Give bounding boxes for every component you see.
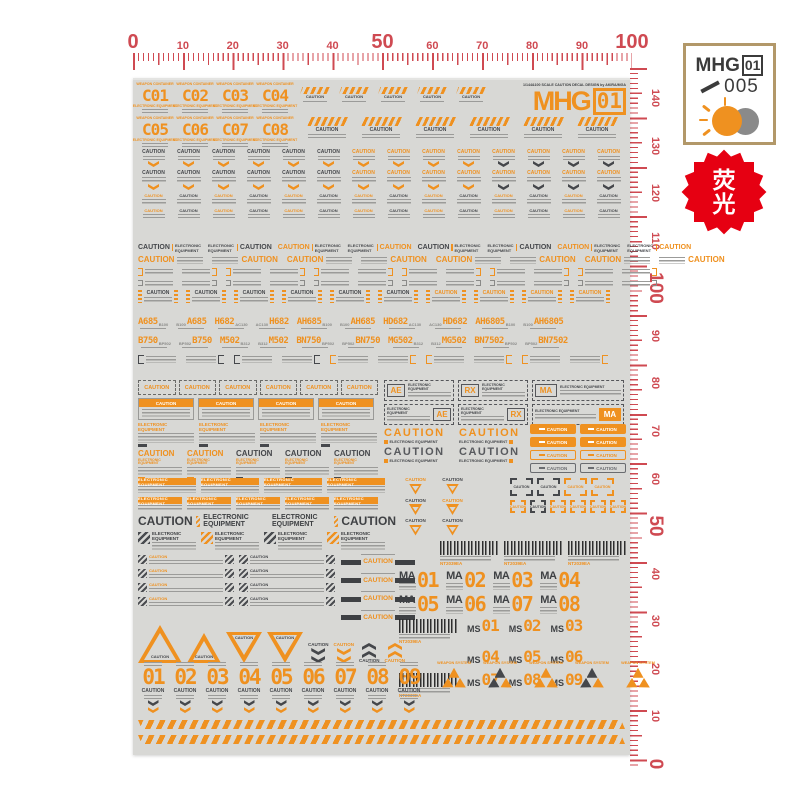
placeholder-text: [458, 156, 480, 160]
code-sub: B100: [322, 322, 332, 327]
barcode-code: NT2039EA: [504, 562, 562, 567]
placeholder-text: [341, 542, 385, 551]
badge-char: 光: [713, 192, 736, 216]
placeholder-text: [182, 143, 208, 147]
caution-label: CAUTION: [250, 583, 324, 587]
code-pair: BN7502 BP502: [525, 337, 568, 346]
caution-label: CAUTION: [405, 519, 426, 524]
placeholder-text: [186, 356, 216, 363]
code-pair-decal: MG502 B312: [388, 337, 423, 350]
placeholder-text: [182, 347, 208, 350]
zigzag-bar: [426, 290, 430, 303]
mini-caution-decal: CAUTION: [138, 209, 169, 218]
mini-caution-decal: CAUTION: [523, 194, 554, 205]
c-code-decal: WEAPON CONTAINER C08 ELECTRONIC EQUIPMEN…: [258, 117, 292, 147]
hazard-mini-decal: CAUTION: [239, 583, 335, 592]
caution-label: CAUTION: [459, 447, 529, 458]
code-pair-decal: AH685 B100: [340, 318, 375, 331]
hazard-stripes: [339, 87, 369, 94]
caution-pill: CAUTION: [530, 450, 576, 460]
electronic-equipment-label: ELECTRONIC EQUIPMENT: [315, 243, 342, 253]
electronic-equipment-label: ELECTRONIC EQUIPMENT: [201, 478, 259, 485]
triangle-down-icon: [446, 504, 459, 515]
corner-bracket-decal: CAUTION: [590, 500, 606, 513]
mini-caution-decal: CAUTION: [523, 150, 554, 167]
placeholder-text: [321, 281, 349, 286]
zigzag-bar: [558, 290, 562, 303]
bracket-icon: [402, 268, 407, 276]
caution-label: CAUTION: [579, 291, 602, 296]
placeholder-text: [142, 109, 168, 113]
triangle-icon: [546, 678, 560, 693]
chevron-caution-decal: CAUTION: [308, 643, 329, 664]
zigzag-bar: [510, 290, 514, 303]
caution-label: CAUTION: [138, 450, 182, 458]
tick-marks-major: [133, 53, 632, 70]
caution-text-decal: CAUTION: [287, 256, 352, 264]
placeholder-text: [497, 281, 525, 286]
corner-bracket-strip: [570, 355, 608, 364]
ruler-number: 60: [640, 469, 670, 489]
ee-paragraph-decal: ELECTRONIC EQUIPMENT: [260, 423, 316, 447]
ruler-number: 10: [640, 706, 670, 726]
caution-label: CAUTION: [552, 502, 564, 511]
placeholder-text: [222, 143, 248, 147]
ruler-number: 70: [462, 41, 502, 52]
weapon-system-label: WEAPON SYSTEM: [437, 662, 471, 666]
stripe-bar-band: [138, 720, 625, 744]
ms-unit-decal: MS 01: [467, 619, 499, 637]
chevron-down-icon: [323, 161, 334, 167]
placeholder-text: [143, 156, 165, 160]
placeholder-text: [422, 177, 446, 183]
bracket-strip-decal: [446, 280, 481, 286]
placeholder-text: [446, 269, 474, 275]
chevron-down-icon: [180, 707, 191, 713]
caution-label: CAUTION: [539, 256, 575, 264]
caution-label: CAUTION: [384, 428, 454, 439]
triangle-icon: [541, 668, 552, 678]
code-pair-decal: MG502 B312: [431, 337, 466, 350]
placeholder-text: [142, 177, 166, 183]
orange-circle: [712, 106, 742, 136]
caution-label: CAUTION: [547, 453, 568, 458]
code-main: B750: [138, 337, 158, 346]
ruler-number: 40: [640, 564, 670, 584]
sheet-header: WEAPON CONTAINER C01 ELECTRONIC EQUIPMEN…: [138, 83, 626, 147]
dash-mark: [588, 428, 594, 430]
code-sub: AC130: [235, 322, 247, 327]
chevron-down-icon: [603, 161, 614, 167]
ma-number: 08: [558, 595, 579, 613]
bracket-strip-decal: [622, 280, 657, 286]
code-pair: AH6805 B100: [523, 318, 563, 327]
unit-text: ELECTRONIC EQUIPMENT: [387, 408, 430, 421]
caution-ee-strip-row: CAUTION ELECTRONIC EQUIPMENT CAUTION ELE…: [138, 243, 626, 252]
placeholder-text: [510, 257, 536, 264]
zigzag-bar: [474, 290, 478, 303]
bracket-strip-decal: [226, 280, 261, 286]
code-sub: B312: [431, 341, 441, 346]
dash-mark: [539, 454, 545, 456]
caution-stripe-decal: CAUTION: [298, 87, 332, 104]
triangle-down-icon: [409, 525, 422, 536]
stencil-number: 05: [270, 667, 291, 688]
chevron-down-icon: [323, 184, 334, 190]
electronic-equipment-label: ELECTRONIC EQUIPMENT: [133, 105, 178, 109]
placeholder-text: [138, 486, 196, 493]
barcode-icon: [568, 541, 626, 555]
mini-caution-decal: CAUTION: [173, 171, 204, 190]
placeholder-text: [540, 607, 557, 614]
tiny-strip-row: [138, 268, 626, 276]
caution-label: CAUTION: [459, 428, 529, 439]
code-main: BN7502: [474, 337, 504, 346]
sun-ray: [702, 128, 711, 136]
ma-label: MA: [399, 571, 416, 582]
placeholder-text: [247, 177, 271, 183]
caution-label: CAUTION: [284, 194, 302, 198]
divider-bar: [312, 244, 313, 251]
placeholder-text: [598, 156, 620, 160]
zigzag-bar: [318, 290, 322, 303]
hazard-text: CAUTION: [250, 583, 324, 592]
weapon-system-label: WEAPON SYSTEM: [575, 662, 609, 666]
caution-label: CAUTION: [339, 291, 362, 296]
placeholder-text: [387, 177, 411, 183]
bracket-strip-decal: [490, 268, 525, 276]
caution-text-block: CAUTION: [336, 291, 364, 303]
code-pair-decal: A685 B100: [176, 318, 206, 331]
placeholder-text: [288, 297, 316, 303]
c-code: C01: [142, 88, 168, 104]
chevron-caution-decal: CAUTION: [359, 643, 380, 664]
hazard-stripe-bar: [138, 720, 625, 729]
unit-code-box: AE ELECTRONIC EQUIPMENT: [384, 404, 454, 425]
placeholder-text: [568, 556, 619, 561]
chevron-down-icon: [372, 700, 383, 706]
mini-caution-decal: CAUTION: [383, 150, 414, 167]
zigzag-bar: [174, 290, 178, 303]
corner-bracket-decal: CAUTION: [610, 500, 626, 513]
chevron-down-icon: [253, 184, 264, 190]
ms-label: MS: [509, 624, 523, 634]
placeholder-text: [318, 214, 340, 218]
hazard-mini-decal: CAUTION: [138, 583, 234, 592]
caution-label: CAUTION: [212, 171, 235, 176]
hazard-stripes: [239, 569, 248, 578]
bracket-strip-decal: [226, 268, 261, 276]
hazard-text: ELECTRONIC EQUIPMENT: [152, 532, 196, 551]
corner-bracket-decal: CAUTION: [510, 478, 533, 496]
sub-label-row: ELECTRONIC EQUIPMENT: [459, 440, 529, 444]
code-main: AH6805: [475, 318, 505, 327]
chevron-down-icon: [358, 161, 369, 167]
mini-caution-decal: CAUTION: [173, 209, 204, 218]
ee-bar-decal: ELECTRONIC EQUIPMENT: [334, 497, 378, 510]
placeholder-text: [321, 269, 349, 275]
caution-label: CAUTION: [512, 480, 531, 494]
divider-bar: [237, 244, 238, 251]
placeholder-text: [434, 356, 464, 363]
placeholder-text: [597, 199, 621, 205]
weapon-system-decal: WEAPON SYSTEM: [572, 662, 612, 690]
corner-bracket-strip: [234, 355, 272, 364]
caution-label: CAUTION: [187, 654, 221, 659]
unit-code: MA: [599, 408, 621, 421]
sub-label-row: ELECTRONIC EQUIPMENT: [384, 440, 454, 444]
code-sub: BP502: [179, 341, 191, 346]
caution-label: CAUTION: [539, 480, 558, 494]
hazard-text: CAUTION: [149, 583, 223, 592]
ma-number: 07: [511, 595, 532, 613]
hazard-stripe-block: ELECTRONIC EQUIPMENT: [201, 532, 259, 551]
bracket-icon: [388, 280, 393, 286]
triangle-icon: [531, 678, 545, 693]
caution-stripe-decal: CAUTION: [454, 87, 488, 104]
mini-caution-decal: CAUTION: [313, 150, 344, 167]
caution-label: CAUTION: [319, 194, 337, 198]
caution-label: CAUTION: [442, 519, 463, 524]
electronic-equipment-label: ELECTRONIC EQUIPMENT: [264, 478, 322, 485]
unit-boxes: AE ELECTRONIC EQUIPMENT RX ELECTRONIC EQ…: [384, 404, 528, 425]
caution-box-band: CAUTION CAUTION CAUTION CAUTION: [138, 380, 626, 476]
code-main: MG502: [388, 337, 413, 346]
bracket-strip-decal: [490, 280, 525, 286]
code-pair-decal: BN750 BP502: [296, 337, 334, 350]
caution-box-left: CAUTION CAUTION CAUTION CAUTION: [138, 380, 378, 476]
caution-label: CAUTION: [149, 597, 223, 601]
electronic-equipment-label: ELECTRONIC EQUIPMENT: [187, 459, 231, 466]
ma-label-block: MA: [446, 571, 463, 590]
caution-outline-decal: CAUTION ELECTRONIC EQUIPMENT: [459, 447, 529, 463]
placeholder-text: [178, 214, 200, 218]
weapon-system-decal: WEAPON SYSTEM: [618, 662, 658, 690]
c-code-row: WEAPON CONTAINER C05 ELECTRONIC EQUIPMEN…: [138, 117, 298, 147]
chevron-down-icon: [340, 700, 351, 706]
caution-stripe-decal: CAUTION: [574, 117, 620, 138]
code-pair: HD682 AC130: [429, 318, 467, 327]
placeholder-text: [387, 199, 411, 205]
placeholder-text: [336, 695, 354, 699]
caution-stripe-decal: CAUTION: [466, 117, 512, 138]
bracket-icon: [476, 280, 481, 286]
placeholder-text: [138, 433, 194, 443]
placeholder-text: [250, 588, 324, 592]
placeholder-text: [304, 695, 322, 699]
hazard-stripes: [225, 555, 234, 564]
barcode-row: NT2039EA NT2039EA NT2039EA: [399, 541, 626, 567]
caution-label: CAUTION: [179, 194, 197, 198]
chevron-down-icon: [183, 184, 194, 190]
code-pair-decal: H682 AC130: [256, 318, 289, 331]
placeholder-text: [527, 199, 551, 205]
placeholder-text: [250, 574, 324, 578]
caution-label: CAUTION: [492, 150, 515, 155]
code-main: A685: [187, 318, 207, 327]
electronic-equipment-label: ELECTRONIC EQUIPMENT: [138, 478, 196, 485]
code-sub: B312: [414, 341, 424, 346]
zigzag-bar: [522, 290, 526, 303]
square-bullet: [509, 440, 513, 444]
header-box-row: CAUTION CAUTION CAUTION CAUTION: [138, 398, 378, 420]
chevron-down-icon: [372, 707, 383, 713]
chevron-up-icon: [362, 643, 376, 650]
caution-label: CAUTION: [206, 689, 229, 694]
placeholder-text: [659, 257, 685, 264]
mini-caution-decal: CAUTION: [488, 209, 519, 218]
caution-text-block: CAUTION: [144, 291, 172, 303]
zigzag-caution-decal: CAUTION: [186, 290, 226, 303]
ma-unit-decal: MA 05: [399, 595, 438, 614]
stencil-number-decal: 06 CAUTION: [298, 662, 328, 713]
placeholder-text: [182, 281, 210, 286]
placeholder-text: [334, 505, 378, 510]
placeholder-text: [242, 356, 272, 363]
placeholder-text: [240, 297, 268, 303]
electronic-equipment-label: ELECTRONIC EQUIPMENT: [459, 459, 507, 463]
triangle-warning-decal: CAUTION: [187, 633, 221, 663]
mini-caution-decal: CAUTION: [243, 171, 274, 190]
weapon-system-row: WEAPON SYSTEM WEAPON SYSTEM: [434, 662, 658, 690]
code-pair-decal: B750 BP502: [179, 337, 212, 350]
electronic-equipment-label: ELECTRONIC EQUIPMENT: [199, 423, 255, 432]
placeholder-text: [470, 134, 508, 138]
bracket-icon: [138, 280, 143, 286]
unit-code-box-ma: MA ELECTRONIC EQUIPMENT: [532, 380, 624, 401]
code-main: BN750: [296, 337, 321, 346]
unit-code: RX: [461, 384, 479, 397]
electronic-equipment-label: ELECTRONIC EQUIPMENT: [236, 459, 280, 466]
caution-label: CAUTION: [363, 578, 393, 585]
hazard-text: CAUTION: [250, 555, 324, 564]
hazard-stripes: [456, 87, 486, 94]
caution-stripe-decal: CAUTION: [304, 117, 350, 138]
bracket-strip-decal: [182, 268, 217, 276]
code-main: HD682: [383, 318, 408, 327]
unit-boxes: AE ELECTRONIC EQUIPMENT RX ELECTRONIC EQ…: [384, 380, 528, 401]
caution-label: CAUTION: [187, 450, 231, 458]
placeholder-text: [562, 177, 586, 183]
code-pair-decal: A685 B100: [138, 318, 168, 331]
placeholder-text: [278, 542, 322, 551]
black-bar: [341, 615, 361, 620]
dash-mark: [588, 467, 594, 469]
chevron-down-icon: [212, 700, 223, 706]
hazard-stripes: [239, 583, 248, 592]
caution-label: CAUTION: [142, 689, 165, 694]
ma-label: MA: [446, 595, 463, 606]
ee-bar-decal: ELECTRONIC EQUIPMENT: [187, 497, 231, 510]
mini-caution-decal: CAUTION: [313, 171, 344, 190]
code-main: AH685: [297, 318, 322, 327]
placeholder-text: [149, 588, 223, 592]
caution-pill: CAUTION: [530, 437, 576, 447]
triangle-icon: [500, 678, 514, 693]
mini-caution-row: CAUTION CAUTION CAUTION CAUTI: [138, 171, 626, 190]
code-pair: M502 B312: [220, 337, 250, 346]
placeholder-text: [177, 177, 201, 183]
hazard-stripes: [417, 87, 447, 94]
chevron-down-icon: [244, 707, 255, 713]
code-pair: BN750 BP502: [342, 337, 380, 346]
ma-number: 01: [417, 571, 438, 589]
chevron-down-icon: [276, 707, 287, 713]
placeholder-text: [560, 390, 621, 395]
ruler-horizontal-numbers: 0102030405060708090100: [133, 26, 632, 52]
corner-square-row-small: CAUTION CAUTION CAUTION CAUTION: [510, 500, 626, 513]
placeholder-text: [528, 156, 550, 160]
triangle-warning-decal: CAUTION: [226, 632, 262, 663]
ma-unit-decal: MA 08: [540, 595, 579, 614]
caution-ee-large: CAUTION ELECTRONIC EQUIPMENT: [138, 514, 262, 528]
caution-label: CAUTION: [384, 447, 454, 458]
dashed-caution-box: CAUTION: [341, 380, 379, 395]
mini-caution-decal: CAUTION: [593, 150, 624, 167]
placeholder-text: [358, 269, 386, 275]
placeholder-text: [388, 156, 410, 160]
placeholder-text: [597, 177, 621, 183]
bracket-icon: [212, 280, 217, 286]
ms-number: 03: [565, 619, 582, 633]
code-pair: B750 BP502: [179, 337, 212, 346]
electronic-equipment-label: ELECTRONIC EQUIPMENT: [175, 243, 202, 253]
caution-ee-strip: CAUTION ELECTRONIC EQUIPMENT: [557, 243, 621, 252]
zigzag-bar: [222, 290, 226, 303]
caution-label: CAUTION: [319, 399, 373, 407]
bracket-strip-decal: [402, 268, 437, 276]
bracket-icon: [652, 280, 657, 286]
chevron-down-icon: [404, 700, 415, 706]
caution-label: CAUTION: [597, 150, 620, 155]
chevron-down-icon: [568, 161, 579, 167]
ruler-number: 130: [640, 136, 670, 156]
caution-label: CAUTION: [405, 478, 426, 483]
triangle-icon: [633, 668, 644, 678]
corner-bracket-row: [138, 355, 626, 364]
code-pair: M502 B312: [258, 337, 288, 346]
hazard-mini-decal: CAUTION: [239, 597, 335, 606]
placeholder-text: [420, 101, 444, 104]
placeholder-text: [399, 607, 416, 614]
placeholder-text: [482, 328, 508, 331]
electronic-equipment-label: ELECTRONIC EQUIPMENT: [285, 497, 329, 504]
caution-text-decal: CAUTION: [138, 256, 203, 264]
barcode-code: NT2039EA: [440, 562, 498, 567]
dash-mark: [539, 441, 545, 443]
hazard-block-row: ELECTRONIC EQUIPMENT ELECTRONIC EQUIPMEN…: [138, 532, 396, 551]
caution-label: CAUTION: [422, 171, 445, 176]
sheet-logo-row: MHG 01: [533, 88, 626, 115]
chevron-caution-decal: CAUTION: [334, 643, 355, 664]
corner-bracket-strip: [378, 355, 416, 364]
stencil-number-decal: 02 CAUTION: [170, 662, 200, 713]
caution-label: CAUTION: [138, 244, 170, 251]
placeholder-text: [534, 269, 562, 275]
unit-text: ELECTRONIC EQUIPMENT: [408, 384, 451, 397]
mini-caution-decal: CAUTION: [593, 194, 624, 205]
chevron-down-icon: [218, 184, 229, 190]
ee-bar-row: ELECTRONIC EQUIPMENT ELECTRONIC EQUIPMEN…: [138, 478, 396, 493]
mini-caution-decal: CAUTION: [558, 209, 589, 218]
barcode-icon: [440, 541, 498, 555]
chevron-down-icon: [148, 184, 159, 190]
hazard-mini-decal: CAUTION: [138, 597, 234, 606]
caution-label: CAUTION: [250, 555, 324, 559]
chevron-down-icon: [428, 184, 439, 190]
electronic-equipment-label: ELECTRONIC EQUIPMENT: [341, 532, 385, 541]
hazard-stripes: [521, 117, 565, 126]
